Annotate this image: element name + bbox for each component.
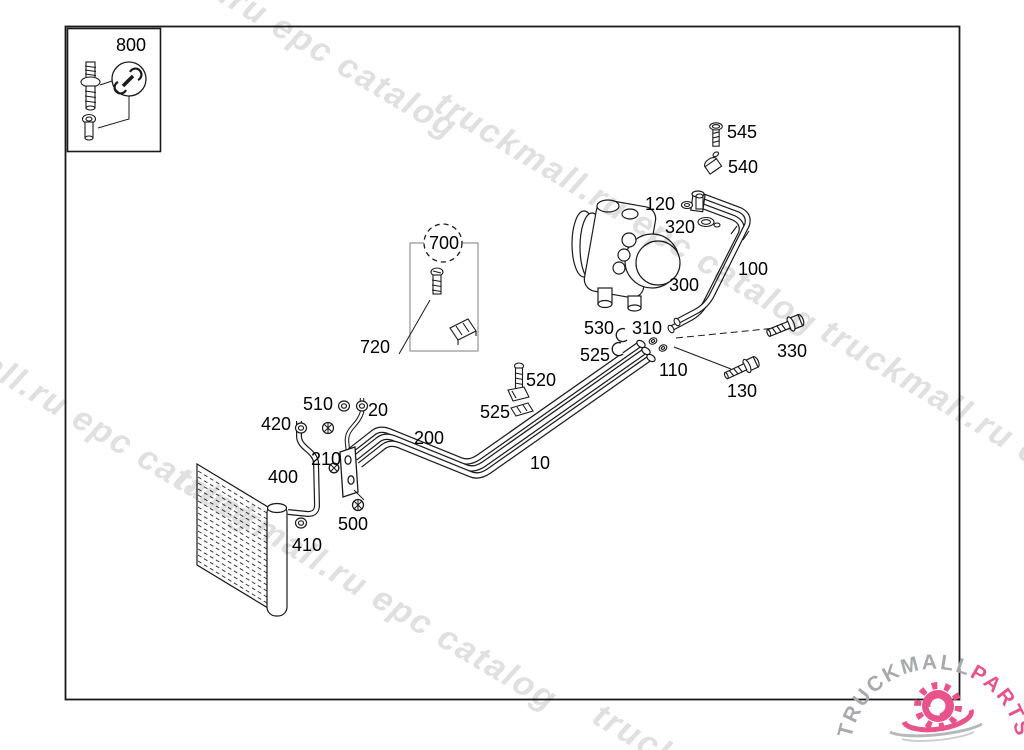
part-label-525[interactable]: 525 [480, 403, 510, 421]
part-label-540[interactable]: 540 [728, 158, 758, 176]
part-label-400[interactable]: 400 [268, 468, 298, 486]
part-label-330[interactable]: 330 [777, 342, 807, 360]
part-label-545[interactable]: 545 [727, 123, 757, 141]
part-label-20[interactable]: 20 [368, 401, 388, 419]
part-label-210[interactable]: 210 [311, 450, 341, 468]
part-label-420[interactable]: 420 [261, 415, 291, 433]
part-label-520[interactable]: 520 [526, 371, 556, 389]
part-label-310[interactable]: 310 [632, 319, 662, 337]
part-label-130[interactable]: 130 [727, 382, 757, 400]
part-label-100[interactable]: 100 [738, 260, 768, 278]
part-label-530[interactable]: 530 [584, 319, 614, 337]
part-label-410[interactable]: 410 [292, 536, 322, 554]
part-label-800[interactable]: 800 [116, 36, 146, 54]
part-label-300[interactable]: 300 [669, 276, 699, 294]
part-label-200[interactable]: 200 [414, 429, 444, 447]
part-label-10[interactable]: 10 [530, 454, 550, 472]
part-label-500[interactable]: 500 [338, 515, 368, 533]
part-label-layer: 8007007205455401203203001005305253101101… [0, 0, 1024, 750]
part-label-110[interactable]: 110 [659, 361, 688, 379]
part-label-320[interactable]: 320 [665, 218, 695, 236]
part-label-510[interactable]: 510 [303, 395, 333, 413]
part-label-720[interactable]: 720 [360, 338, 390, 356]
parts-diagram-page: TRUCKMALLPARTS truckmall.ru epc catalogt… [0, 0, 1024, 750]
part-label-525[interactable]: 525 [580, 346, 610, 364]
part-label-120[interactable]: 120 [645, 195, 675, 213]
part-label-700[interactable]: 700 [429, 234, 459, 252]
